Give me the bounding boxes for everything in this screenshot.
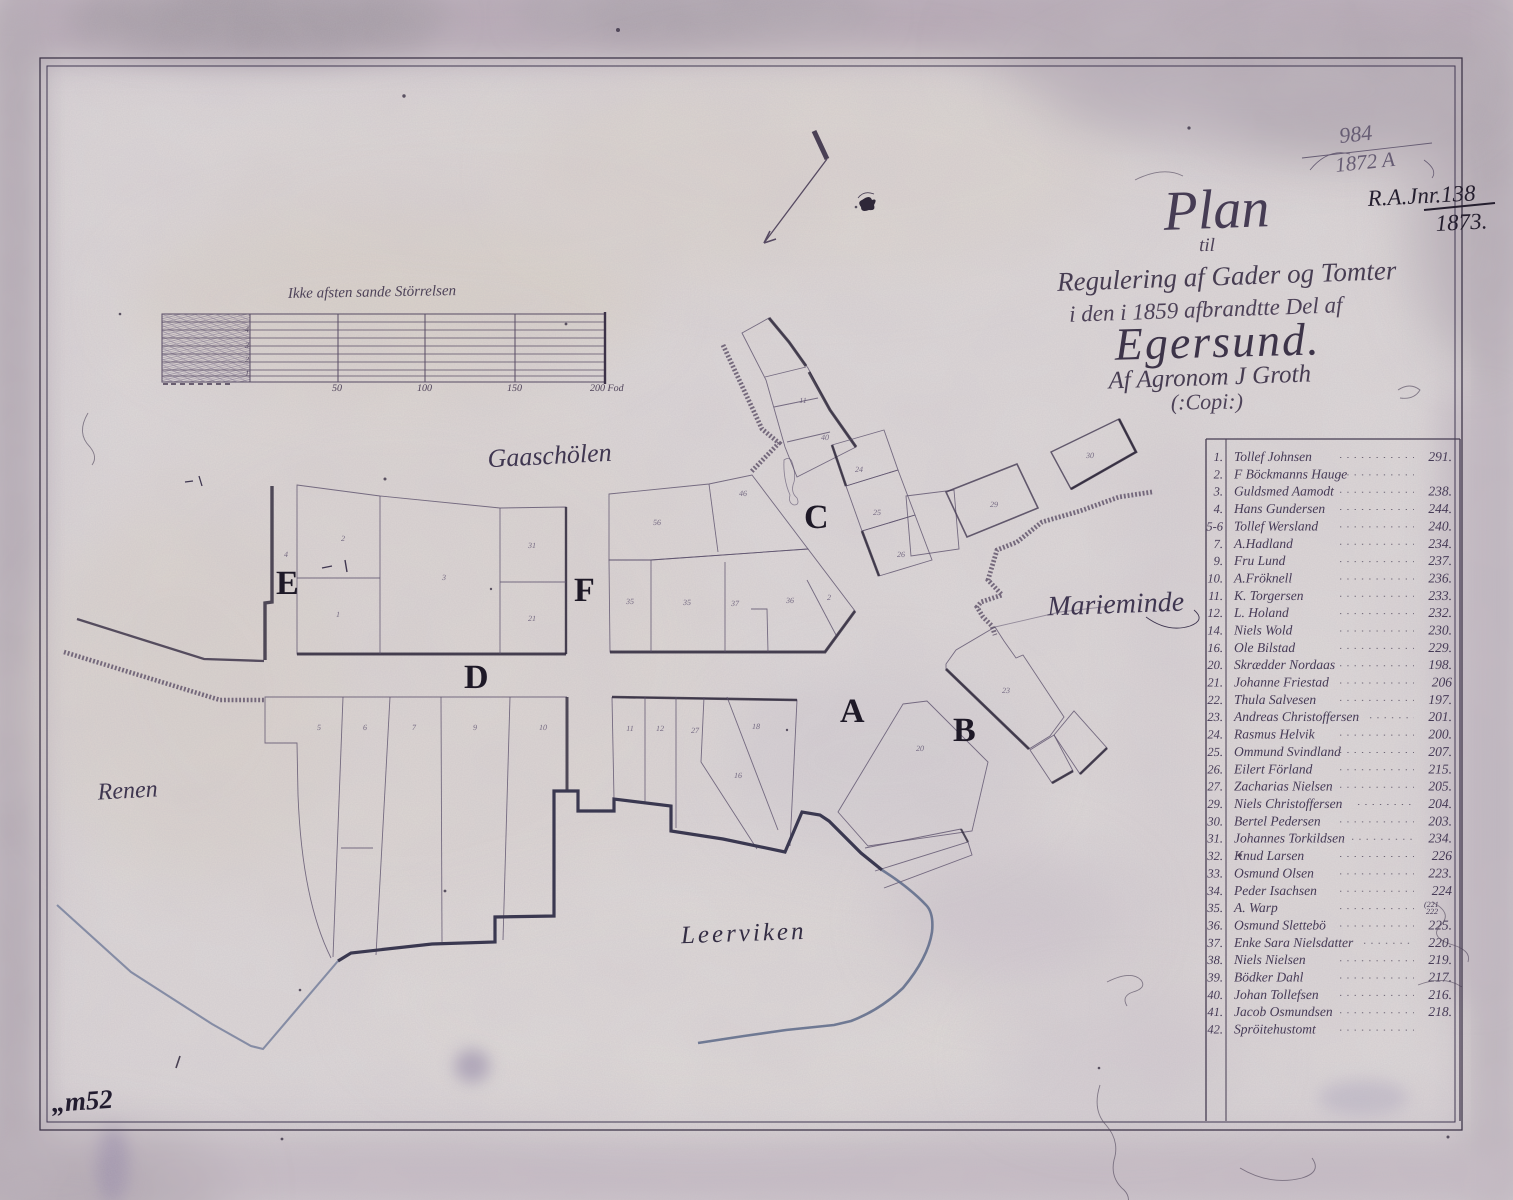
svg-text:200 Fod: 200 Fod: [590, 383, 625, 394]
svg-text:215.: 215.: [1428, 761, 1452, 776]
svg-text:219.: 219.: [1428, 952, 1452, 967]
svg-text:36.: 36.: [1206, 919, 1223, 933]
svg-text:10.: 10.: [1207, 572, 1223, 586]
svg-text:L. Holand: L. Holand: [1233, 605, 1289, 620]
svg-text:11.: 11.: [1208, 589, 1223, 603]
svg-text:Knud Larsen: Knud Larsen: [1233, 848, 1304, 863]
svg-text:Enke Sara Nielsdatter: Enke Sara Nielsdatter: [1233, 935, 1354, 950]
svg-text:984: 984: [1338, 120, 1373, 148]
svg-text:35: 35: [625, 597, 634, 606]
svg-text:41.: 41.: [1207, 1005, 1223, 1019]
svg-text:4: 4: [284, 550, 288, 559]
svg-text:B: B: [953, 712, 976, 749]
svg-text:Jacob Osmundsen: Jacob Osmundsen: [1234, 1004, 1333, 1019]
svg-text:Rasmus Helvik: Rasmus Helvik: [1233, 727, 1316, 742]
svg-text:21.: 21.: [1207, 676, 1223, 690]
svg-text:3: 3: [244, 341, 249, 350]
svg-text:40: 40: [821, 433, 829, 442]
svg-text:2: 2: [827, 593, 831, 602]
svg-text:12.: 12.: [1207, 606, 1223, 620]
svg-text:6: 6: [363, 723, 367, 732]
svg-text:18: 18: [752, 722, 760, 731]
svg-text:Niels Nielsen: Niels Nielsen: [1233, 952, 1306, 967]
svg-text:1: 1: [245, 369, 249, 378]
svg-text:14.: 14.: [1207, 624, 1223, 638]
svg-text:Plan: Plan: [1161, 177, 1270, 243]
svg-text:A.Fröknell: A.Fröknell: [1233, 571, 1292, 586]
svg-text:150: 150: [507, 383, 522, 394]
svg-text:Ole Bilstad: Ole Bilstad: [1234, 640, 1295, 655]
svg-text:2.: 2.: [1214, 467, 1223, 481]
svg-text:200.: 200.: [1428, 727, 1452, 742]
svg-text:A.Hadland: A.Hadland: [1233, 536, 1293, 551]
svg-text:til: til: [1199, 235, 1215, 256]
svg-text:A. Warp: A. Warp: [1233, 900, 1278, 915]
svg-text:7.: 7.: [1214, 537, 1223, 551]
svg-text:244.: 244.: [1428, 501, 1452, 516]
svg-text:230.: 230.: [1428, 623, 1452, 638]
svg-text:Zacharias Nielsen: Zacharias Nielsen: [1234, 779, 1333, 794]
svg-text:Marieminde: Marieminde: [1046, 587, 1185, 623]
svg-text:12: 12: [656, 724, 664, 733]
svg-text:226: 226: [1432, 848, 1453, 863]
svg-text:Guldsmed Aamodt: Guldsmed Aamodt: [1234, 484, 1335, 499]
svg-text:1873.: 1873.: [1435, 208, 1488, 236]
svg-text:4.: 4.: [1214, 502, 1223, 516]
svg-text:Hans Gundersen: Hans Gundersen: [1233, 501, 1325, 516]
svg-text:Bödker Dahl: Bödker Dahl: [1234, 970, 1304, 985]
svg-text:204.: 204.: [1428, 796, 1452, 811]
svg-text:9.: 9.: [1214, 554, 1223, 568]
svg-text:36: 36: [785, 596, 794, 605]
svg-text:16: 16: [734, 771, 742, 780]
svg-text:223.: 223.: [1428, 865, 1452, 880]
svg-text:225.: 225.: [1428, 918, 1452, 933]
svg-text:291.: 291.: [1428, 449, 1452, 464]
svg-text:Niels Wold: Niels Wold: [1233, 623, 1293, 638]
svg-text:Spröitehustomt: Spröitehustomt: [1234, 1022, 1317, 1037]
svg-text:31.: 31.: [1206, 832, 1223, 846]
svg-text:26: 26: [897, 550, 905, 559]
svg-text:Johan Tollefsen: Johan Tollefsen: [1234, 987, 1319, 1002]
svg-text:37.: 37.: [1206, 936, 1223, 950]
svg-text:4: 4: [245, 325, 249, 334]
svg-text:Johannes Torkildsen: Johannes Torkildsen: [1234, 831, 1345, 846]
svg-text:217.: 217.: [1428, 970, 1452, 985]
svg-text:C: C: [804, 499, 829, 536]
svg-text:220.: 220.: [1428, 935, 1452, 950]
svg-text:33.: 33.: [1206, 866, 1223, 880]
svg-text:35.: 35.: [1206, 901, 1223, 915]
svg-text:11: 11: [626, 724, 633, 733]
svg-text:F Böckmanns Hauge: F Böckmanns Hauge: [1233, 466, 1347, 481]
svg-text:100: 100: [417, 383, 432, 394]
svg-text:222: 222: [1426, 907, 1438, 916]
svg-text:Osmund Slettebö: Osmund Slettebö: [1234, 918, 1326, 933]
svg-text:218.: 218.: [1428, 1004, 1452, 1019]
svg-text:37: 37: [730, 599, 740, 608]
svg-text:11: 11: [799, 396, 806, 405]
svg-text:5-6: 5-6: [1206, 519, 1223, 533]
svg-text:29.: 29.: [1207, 797, 1223, 811]
svg-text:25.: 25.: [1207, 745, 1223, 759]
svg-text:42.: 42.: [1207, 1023, 1223, 1037]
svg-text:D: D: [464, 659, 489, 696]
svg-text:56: 56: [653, 518, 661, 527]
svg-text:Renen: Renen: [96, 776, 158, 805]
svg-text:9: 9: [473, 723, 477, 732]
svg-text:22.: 22.: [1207, 693, 1223, 707]
svg-text:Fru Lund: Fru Lund: [1233, 553, 1286, 568]
svg-text:Tollef Johnsen: Tollef Johnsen: [1234, 449, 1312, 464]
svg-text:Thula Salvesen: Thula Salvesen: [1234, 692, 1316, 707]
svg-text:35: 35: [682, 598, 691, 607]
svg-text:32.: 32.: [1206, 849, 1223, 863]
svg-text:203.: 203.: [1428, 813, 1452, 828]
svg-text:10: 10: [539, 723, 547, 732]
svg-text:16.: 16.: [1207, 641, 1223, 655]
svg-text:3.: 3.: [1213, 485, 1223, 499]
svg-text:Niels Christoffersen: Niels Christoffersen: [1233, 796, 1343, 811]
svg-text:229.: 229.: [1428, 640, 1452, 655]
svg-text:Peder Isachsen: Peder Isachsen: [1233, 883, 1317, 898]
svg-text:31: 31: [527, 541, 536, 550]
svg-text:Bertel Pedersen: Bertel Pedersen: [1234, 813, 1321, 828]
svg-text:Andreas Christoffersen: Andreas Christoffersen: [1233, 709, 1359, 724]
svg-text:24.: 24.: [1207, 728, 1223, 742]
svg-text:224: 224: [1432, 883, 1453, 898]
svg-text:240.: 240.: [1428, 518, 1452, 533]
svg-text:236.: 236.: [1428, 571, 1452, 586]
svg-text:(:Copi:): (:Copi:): [1171, 388, 1244, 414]
svg-text:3: 3: [441, 573, 446, 582]
svg-text:34.: 34.: [1206, 884, 1223, 898]
svg-text:27.: 27.: [1207, 780, 1223, 794]
svg-text:237.: 237.: [1428, 553, 1452, 568]
svg-text:207.: 207.: [1428, 744, 1452, 759]
svg-text:233.: 233.: [1428, 588, 1452, 603]
svg-text:234.: 234.: [1428, 831, 1452, 846]
svg-text:206: 206: [1432, 675, 1453, 690]
svg-text:197.: 197.: [1428, 692, 1452, 707]
svg-text:F: F: [574, 572, 595, 609]
svg-text:26.: 26.: [1207, 762, 1223, 776]
svg-text:1: 1: [336, 610, 340, 619]
svg-text:40.: 40.: [1207, 988, 1223, 1002]
svg-text:29: 29: [990, 500, 998, 509]
svg-text:5: 5: [317, 723, 321, 732]
svg-text:20.: 20.: [1207, 658, 1223, 672]
svg-text:198.: 198.: [1428, 657, 1452, 672]
svg-text:Ikke afsten sande Störrelsen: Ikke afsten sande Störrelsen: [287, 283, 456, 302]
svg-text:24: 24: [855, 465, 863, 474]
svg-text:234.: 234.: [1428, 536, 1452, 551]
svg-text:Leerviken: Leerviken: [680, 918, 807, 949]
svg-text:2: 2: [341, 534, 345, 543]
svg-text:46: 46: [739, 489, 747, 498]
svg-text:30: 30: [1085, 451, 1094, 460]
svg-text:Ommund Svindland: Ommund Svindland: [1234, 744, 1341, 759]
svg-text:1.: 1.: [1214, 450, 1223, 464]
svg-text:50: 50: [332, 383, 342, 394]
svg-text:K. Torgersen: K. Torgersen: [1233, 588, 1304, 603]
svg-text:216.: 216.: [1428, 987, 1452, 1002]
svg-text:38.: 38.: [1206, 953, 1223, 967]
svg-text:Tollef Wersland: Tollef Wersland: [1234, 518, 1318, 533]
svg-text:201.: 201.: [1428, 709, 1452, 724]
svg-text:2: 2: [245, 355, 249, 364]
svg-text:27: 27: [691, 726, 700, 735]
svg-text:23.: 23.: [1207, 710, 1223, 724]
svg-text:E: E: [276, 565, 299, 602]
svg-text:232.: 232.: [1428, 605, 1452, 620]
svg-text:238.: 238.: [1428, 484, 1452, 499]
svg-text:21: 21: [528, 614, 536, 623]
svg-text:25: 25: [873, 508, 881, 517]
svg-text:20: 20: [916, 744, 924, 753]
svg-text:30.: 30.: [1206, 814, 1223, 828]
svg-text:Johanne Friestad: Johanne Friestad: [1234, 675, 1329, 690]
svg-text:23: 23: [1002, 686, 1010, 695]
svg-text:Eilert Förland: Eilert Förland: [1233, 761, 1313, 776]
svg-text:A: A: [840, 693, 865, 730]
svg-text:205.: 205.: [1428, 779, 1452, 794]
svg-text:Osmund Olsen: Osmund Olsen: [1234, 865, 1314, 880]
svg-text:Skrædder Nordaas: Skrædder Nordaas: [1234, 657, 1335, 672]
svg-text:„m52: „m52: [50, 1084, 113, 1118]
svg-text:39.: 39.: [1206, 971, 1223, 985]
